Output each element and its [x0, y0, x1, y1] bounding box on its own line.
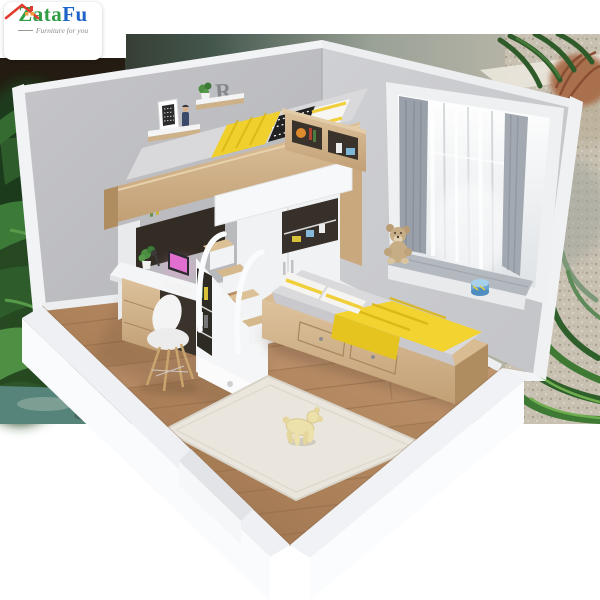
brand-tagline-text: Furniture for you — [36, 26, 88, 35]
toy-robot — [336, 143, 342, 153]
room-render: R — [0, 0, 600, 600]
brand-tagline: Furniture for you — [18, 26, 88, 35]
room: R — [12, 40, 600, 600]
brand-logo: ZataFu Furniture for you — [4, 2, 102, 60]
bay-window — [384, 82, 564, 310]
figurine — [182, 105, 189, 127]
picture-frame — [158, 99, 179, 131]
house-roof-icon — [4, 2, 48, 20]
loft-frame-end — [104, 186, 118, 230]
product-image: R — [0, 0, 600, 600]
toy-orange — [296, 128, 306, 138]
brand-name-part2: Fu — [62, 2, 88, 26]
toy-box — [346, 148, 355, 155]
drum-toy — [471, 279, 489, 296]
wardrobe-handle — [291, 260, 294, 273]
wardrobe-handle — [283, 262, 286, 275]
